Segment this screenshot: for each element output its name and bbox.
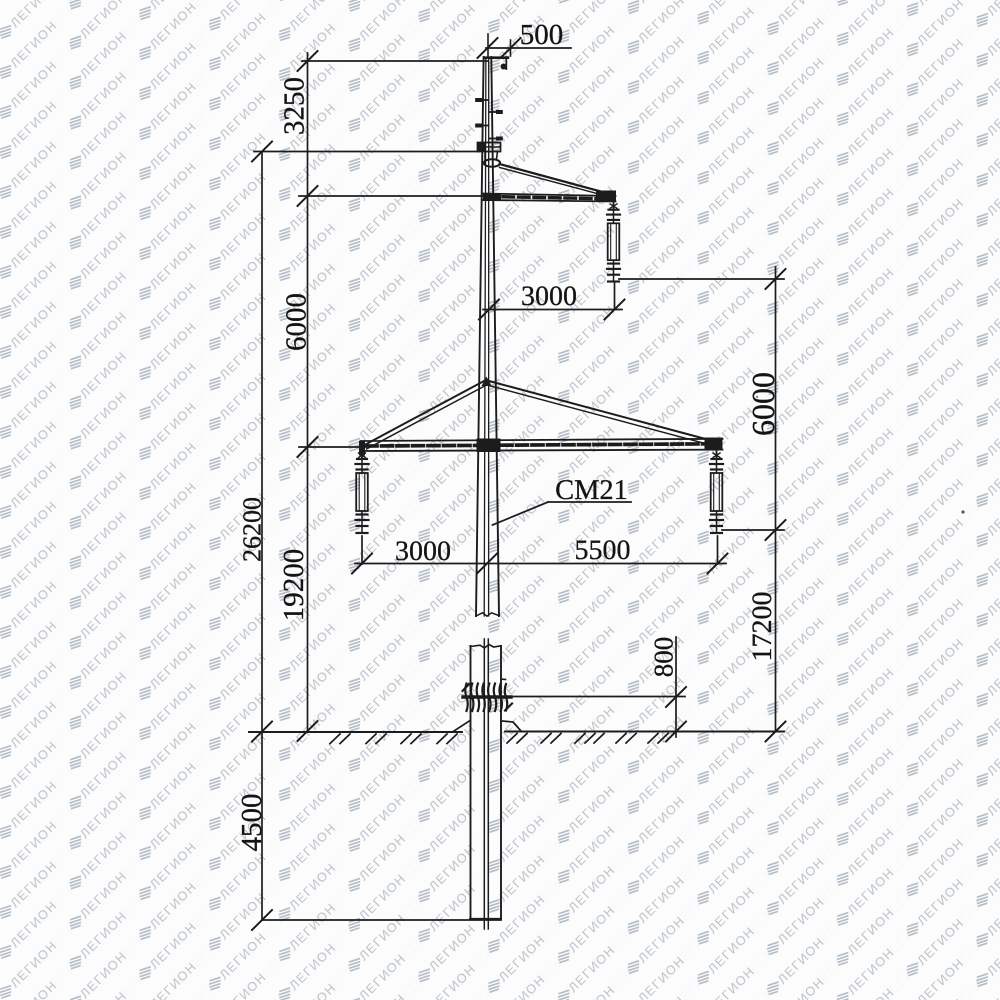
svg-text:26200: 26200 xyxy=(238,497,267,562)
svg-text:3250: 3250 xyxy=(279,77,311,135)
svg-text:17200: 17200 xyxy=(747,592,778,662)
svg-text:4500: 4500 xyxy=(236,794,268,852)
svg-text:800: 800 xyxy=(649,637,679,678)
svg-text:3000: 3000 xyxy=(395,536,451,567)
svg-text:6000: 6000 xyxy=(281,293,313,351)
svg-text:3000: 3000 xyxy=(521,281,577,312)
svg-text:6000: 6000 xyxy=(745,372,781,436)
svg-text:19200: 19200 xyxy=(278,549,310,622)
svg-text:5500: 5500 xyxy=(575,535,631,566)
svg-text:СМ21: СМ21 xyxy=(555,475,628,506)
svg-text:500: 500 xyxy=(520,19,564,51)
